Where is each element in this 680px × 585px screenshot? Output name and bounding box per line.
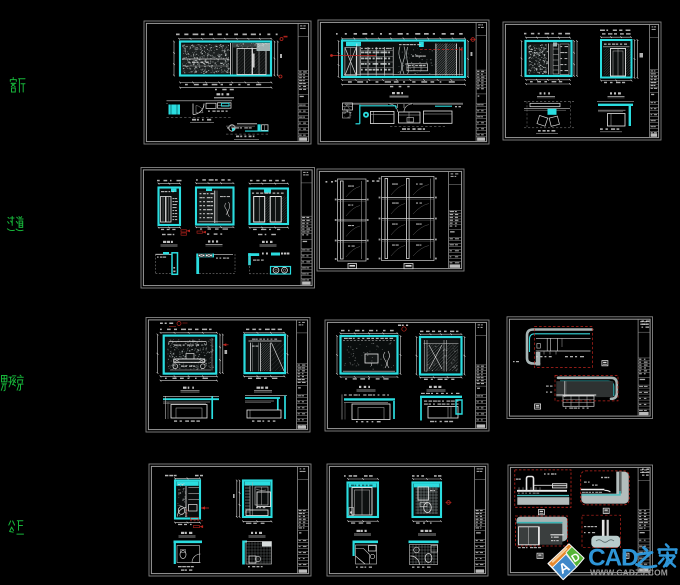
svg-text:WWW.CADZJ.COM: WWW.CADZJ.COM [590,568,668,578]
